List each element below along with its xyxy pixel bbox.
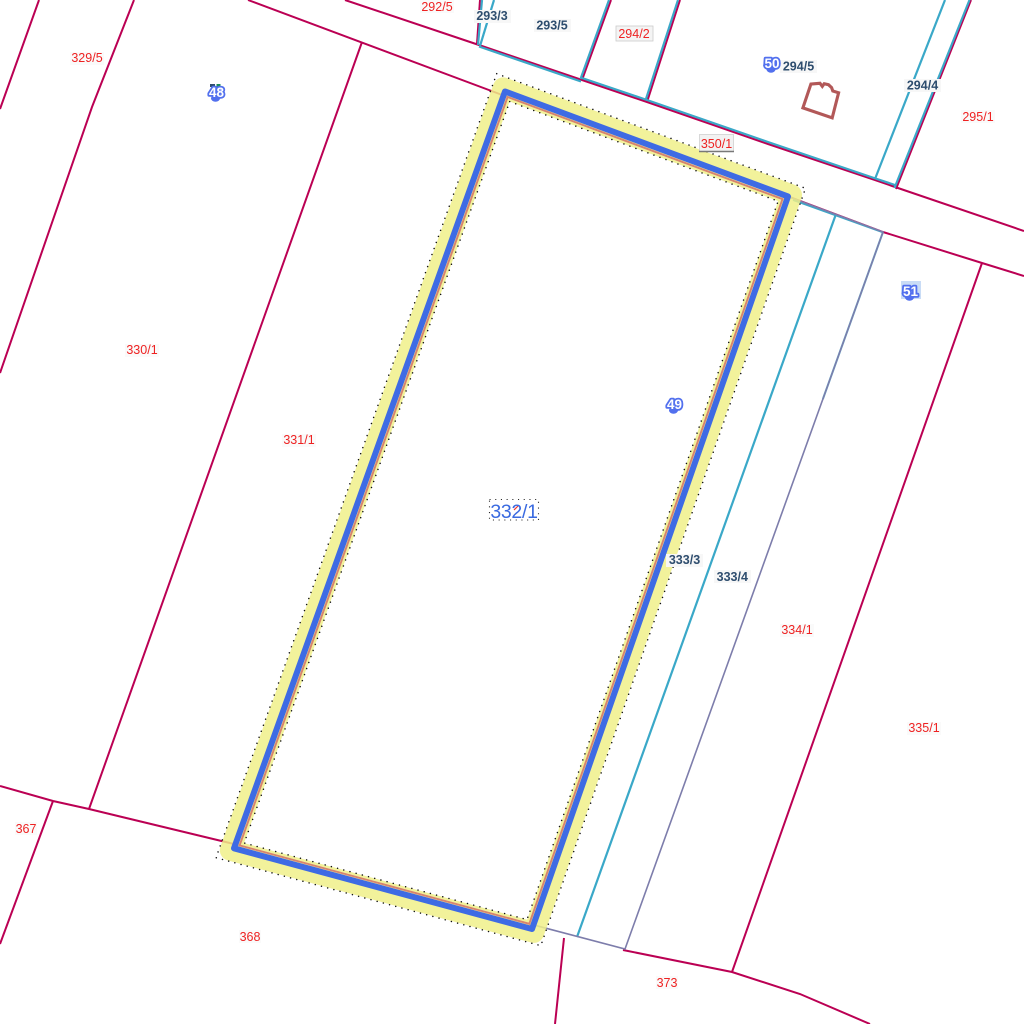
svg-text:293/5: 293/5 — [536, 19, 567, 33]
svg-text:332/1: 332/1 — [490, 501, 537, 523]
svg-text:51: 51 — [903, 284, 919, 299]
svg-text:294/4: 294/4 — [907, 79, 938, 93]
svg-text:373: 373 — [657, 976, 678, 990]
svg-text:330/1: 330/1 — [126, 343, 157, 357]
svg-text:295/1: 295/1 — [962, 110, 993, 124]
svg-text:350/1: 350/1 — [701, 137, 732, 151]
svg-text:368: 368 — [240, 930, 261, 944]
svg-text:367: 367 — [16, 822, 37, 836]
svg-text:333/4: 333/4 — [717, 570, 748, 584]
svg-text:333/3: 333/3 — [669, 553, 700, 567]
svg-text:334/1: 334/1 — [781, 623, 812, 637]
svg-text:49: 49 — [667, 397, 682, 412]
svg-text:293/3: 293/3 — [476, 9, 507, 23]
svg-text:294/5: 294/5 — [783, 60, 814, 74]
svg-text:329/5: 329/5 — [71, 51, 102, 65]
svg-text:335/1: 335/1 — [908, 721, 939, 735]
svg-text:48: 48 — [209, 85, 225, 100]
svg-text:50: 50 — [764, 56, 779, 71]
svg-text:331/1: 331/1 — [283, 433, 314, 447]
svg-text:294/2: 294/2 — [618, 27, 649, 41]
svg-text:292/5: 292/5 — [421, 0, 452, 14]
